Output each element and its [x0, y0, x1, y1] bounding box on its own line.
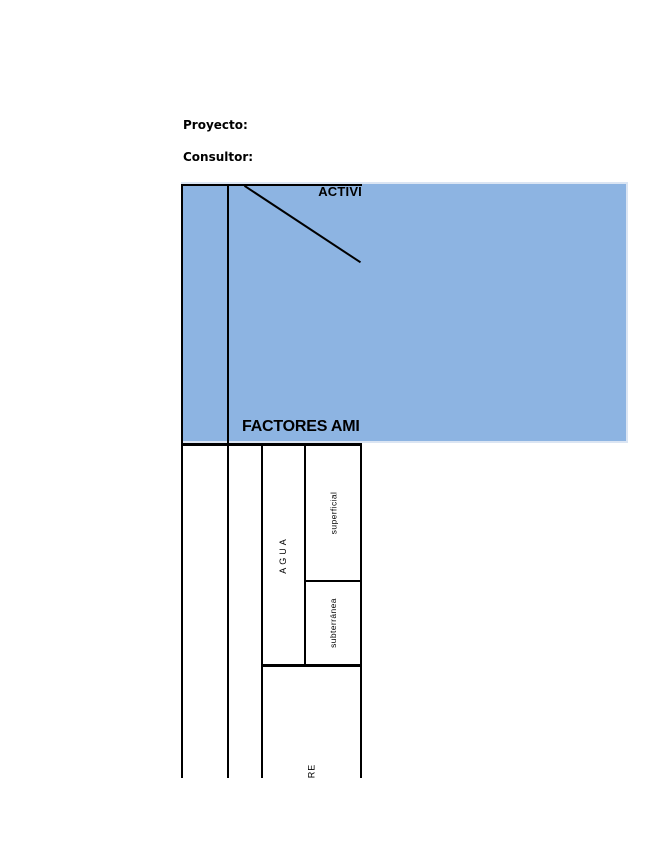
- factor-group-cell-re: RE: [262, 758, 361, 784]
- table-border-top: [181, 184, 362, 186]
- activities-header-label: ACTIVI: [228, 184, 362, 199]
- matrix-header-fill: [181, 182, 628, 443]
- subfactor-cell-subterranea: subterránea: [305, 582, 361, 664]
- table-border-agua-bottom: [261, 664, 362, 667]
- factor-group-cell-agua: AGUA: [262, 446, 304, 664]
- factor-group-label-agua: AGUA: [278, 536, 288, 574]
- subfactor-label-superficial: superficial: [328, 492, 338, 535]
- consultor-label: Consultor:: [183, 150, 253, 164]
- subfactor-label-subterranea: subterránea: [328, 598, 338, 648]
- subfactor-cell-superficial: superficial: [305, 446, 361, 580]
- factor-group-label-re: RE: [306, 764, 316, 779]
- factors-header-label: FACTORES AMI: [242, 418, 360, 435]
- proyecto-label: Proyecto:: [183, 118, 248, 132]
- document-page: Proyecto: Consultor: ACTIVI FACTORES AMI…: [0, 0, 655, 848]
- table-border-left: [181, 184, 183, 778]
- table-border-col-1: [227, 184, 229, 778]
